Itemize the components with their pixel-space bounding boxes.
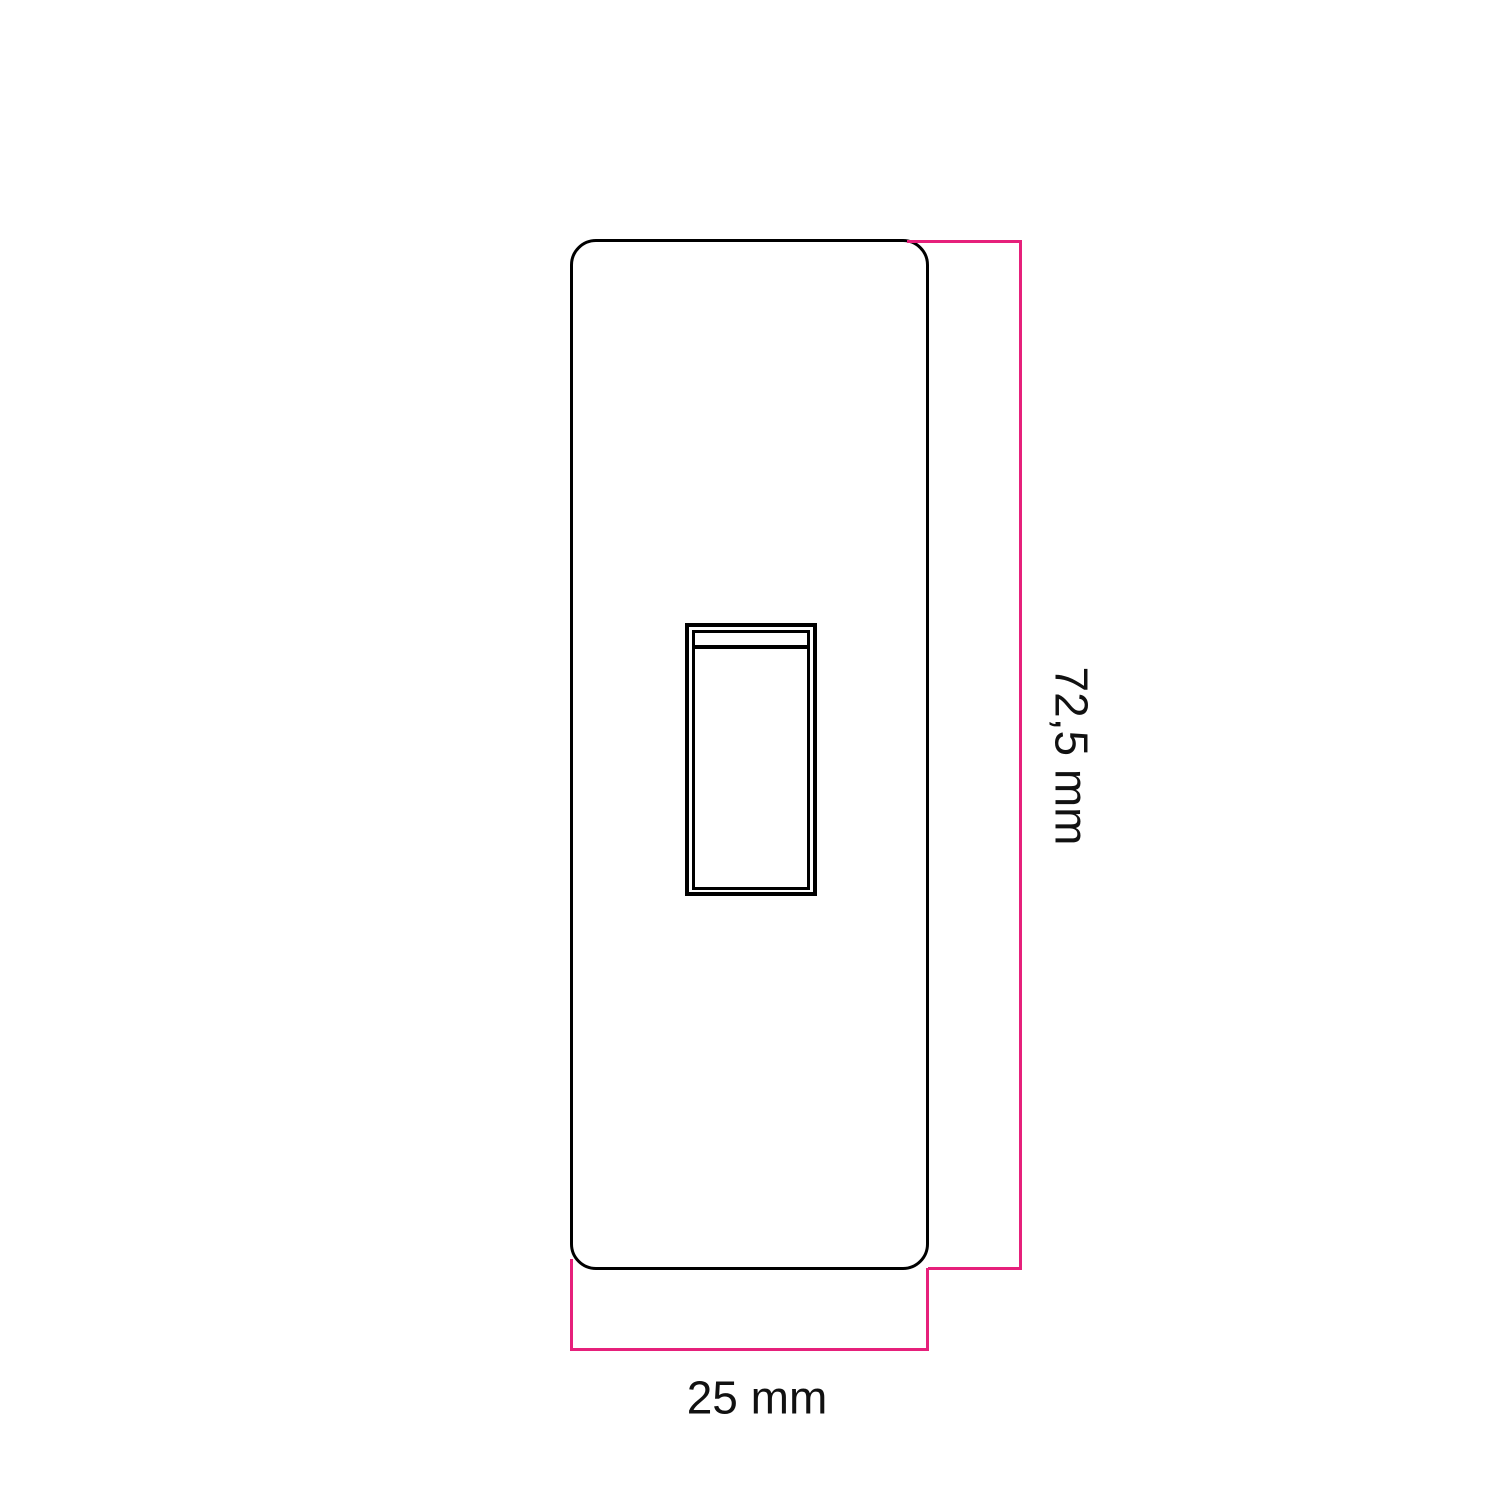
height-dim-extension-top [907,240,1022,243]
rocker-top-edge-line [692,645,810,649]
dimension-diagram: 72,5 mm 25 mm [0,0,1500,1500]
width-dim-label: 25 mm [687,1370,828,1425]
width-dim-extension-right [926,1268,929,1351]
height-dim-label: 72,5 mm [1043,667,1098,846]
width-dim-line [570,1348,929,1351]
width-dim-extension-left [570,1259,573,1351]
height-dim-extension-bottom [928,1267,1022,1270]
height-dim-line [1019,240,1022,1270]
switch-rocker-outline [692,630,810,890]
